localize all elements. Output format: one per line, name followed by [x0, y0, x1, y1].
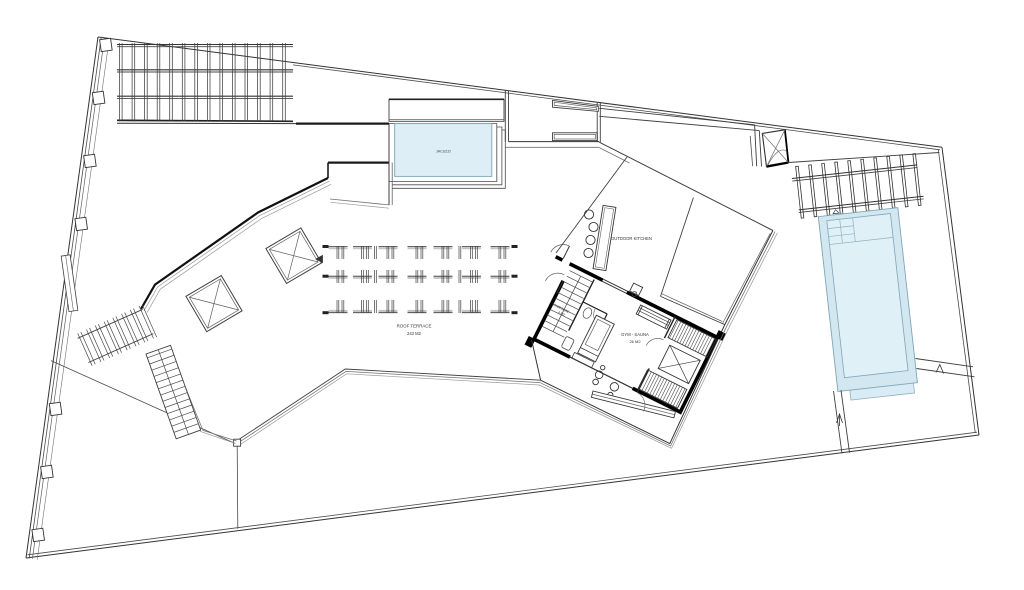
svg-text:JACUZZI: JACUZZI — [436, 150, 451, 154]
svg-text:ROOF TERRACE: ROOF TERRACE — [397, 324, 432, 329]
svg-text:GYM - SAUNA: GYM - SAUNA — [621, 332, 649, 337]
svg-text:26 M2: 26 M2 — [629, 339, 641, 344]
svg-text:243 M2: 243 M2 — [407, 331, 422, 336]
svg-text:OUTDOOR KITCHEN: OUTDOOR KITCHEN — [611, 236, 652, 241]
